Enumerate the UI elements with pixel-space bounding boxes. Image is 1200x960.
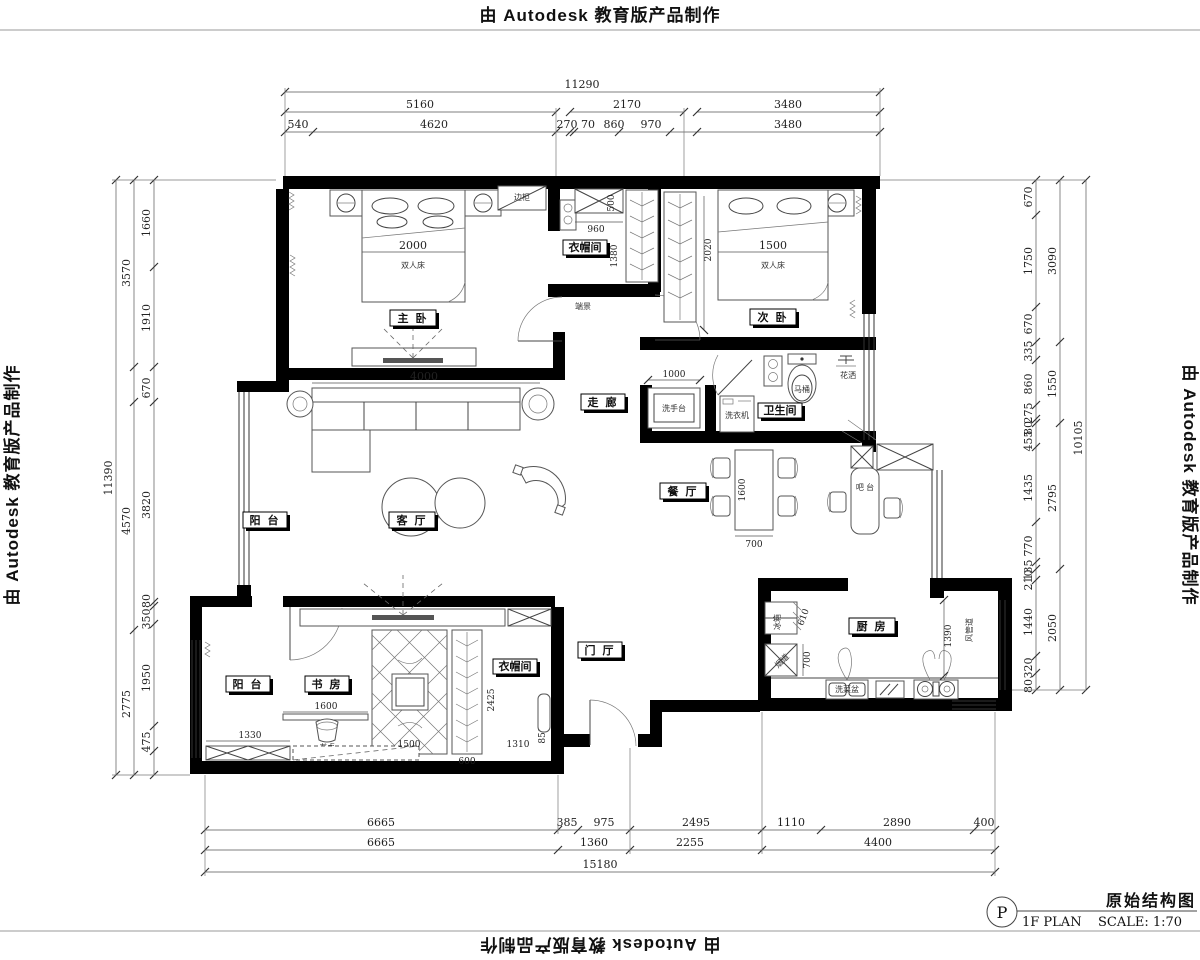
dim-right: 2050 [1046,614,1059,642]
dim-closet-depth: 1380 [610,244,620,267]
label-double-bed-second: 双人床 [761,260,785,270]
kitchen-sink: 洗菜盆 [826,648,868,699]
dim-right: 455 [1022,431,1035,452]
room-label-cloakroom-top: 衣帽间 [563,240,610,258]
armchair [513,465,566,515]
dim-left: 3820 [140,491,153,519]
dim-chain-top: 11290 5160 2170 3480 540 4620 270 70 860… [281,78,884,176]
dim-kitchen-depth: 700 [803,651,813,668]
svg-text:阳 台: 阳 台 [249,513,280,527]
side-cabinet-top: 边柜 [498,186,546,210]
svg-text:餐 厅: 餐 厅 [666,484,698,498]
plan-label: 1F PLAN [1022,915,1082,930]
drawing-title: 原始结构图 [1106,891,1196,910]
dim-right: 1750 [1022,247,1035,275]
dim-kitchen-width: 1390 [944,624,954,647]
svg-text:衣帽间: 衣帽间 [569,240,602,254]
fridge: 冰箱 610 [765,602,812,634]
tatami [372,630,447,754]
side-table-left [287,391,313,417]
dim-right: 3090 [1046,247,1059,275]
dim-bottom: 2255 [676,836,704,849]
stamp-text-left: 由 Autodesk 教育版产品制作 [2,365,22,606]
dim-right: 320 [1022,658,1035,679]
dim-bottom: 6665 [367,816,395,829]
cutting-board [876,681,904,698]
dim-second-bed: 1500 [759,239,787,252]
side-table-right [522,388,554,420]
dim-left: 1950 [140,664,153,692]
dim-right: 1435 [1022,474,1035,502]
dim-right: 80 [1022,679,1035,693]
dim-tatami: 1500 [398,740,421,750]
dim-bottom: 2890 [883,816,911,829]
room-label-foyer: 门 厅 [578,642,625,661]
svg-text:主 卧: 主 卧 [397,311,428,325]
dim-top-total: 11290 [565,78,600,91]
svg-text:走 廊: 走 廊 [586,395,618,409]
door-entry [590,700,636,746]
svg-text:衣帽间: 衣帽间 [499,659,532,673]
bar-counter: 吧 台 [828,468,903,534]
dim-top: 2170 [613,98,641,111]
dim-bottom-total: 15180 [583,858,618,871]
dim-dining-width: 700 [745,540,762,550]
dim-top: 3480 [774,98,802,111]
dim-left: 350 [140,609,153,630]
room-label-balcony-living: 阳 台 [243,512,290,531]
dim-balcony-study: 1330 [239,731,262,741]
dim-right: 860 [1022,374,1035,395]
dim-left: 670 [140,378,153,399]
dim-left: 80 [140,594,153,608]
dim-dining-length: 1600 [738,478,748,501]
room-label-study: 书 房 [305,676,352,695]
dim-top: 70 [581,118,595,131]
svg-text:冰箱: 冰箱 [772,614,782,630]
dim-right: 275 [1022,403,1035,424]
dim-left: 1910 [140,304,153,332]
dim-left: 2775 [120,690,133,718]
dim-top: 860 [604,118,625,131]
master-bed: 2000 双人床 [362,190,465,302]
svg-text:门 厅: 门 厅 [584,643,615,657]
dim-left-total: 11390 [102,461,115,496]
scale-label: SCALE: 1:70 [1098,915,1182,930]
room-label-balcony-study: 阳 台 [226,676,273,695]
floor-plan-canvas: 由 Autodesk 教育版产品制作 由 Autodesk 教育版产品制作 由 … [0,0,1200,960]
vanity: 洗手台 1000 [644,370,704,428]
room-label-living-room: 客 厅 [389,512,438,531]
room-label-master-bedroom: 主 卧 [390,310,439,329]
room-label-second-bedroom: 次 卧 [750,309,799,328]
dim-vanity: 1000 [663,370,686,380]
svg-text:洗手台: 洗手台 [662,403,686,413]
dim-left: 3570 [120,259,133,287]
stamp-text-top: 由 Autodesk 教育版产品制作 [480,5,721,25]
stove [914,651,958,699]
dim-right: 670 [1022,187,1035,208]
dim-bottom: 1110 [777,816,805,829]
dim-right: 1440 [1022,608,1035,636]
dim-left: 475 [140,732,153,753]
dim-second-wardrobe: 2020 [704,238,714,261]
dim-left: 4570 [120,507,133,535]
dim-top: 970 [641,118,662,131]
sofa [312,388,520,472]
dim-top: 270 [557,118,578,131]
svg-text:花洒: 花洒 [840,370,856,380]
bathroom: 洗手台 1000 洗衣机 马桶 花洒 卫生间 [644,354,876,443]
balcony-cabinets [206,746,419,760]
dim-right: 670 [1022,314,1035,335]
shower: 花洒 [836,356,876,443]
desk: 1600 书桌 [283,702,368,752]
stamp-text-right: 由 Autodesk 教育版产品制作 [1180,365,1200,606]
dim-right: 2795 [1046,484,1059,512]
coffee-table-2 [435,478,485,528]
kitchen: 冰箱 610 烟道 700 洗菜盆 1390 风管道 [765,596,998,699]
dim-bottom: 2495 [682,816,710,829]
svg-text:吧 台: 吧 台 [856,482,874,492]
title-block: P 原始结构图 1F PLAN SCALE: 1:70 [987,891,1197,930]
svg-text:卫生间: 卫生间 [764,403,797,417]
svg-text:马桶: 马桶 [794,384,810,394]
dim-master-bed: 2000 [399,239,427,252]
svg-text:书 房: 书 房 [311,677,342,691]
dim-right: 210 [1022,570,1035,591]
svg-text:客 厅: 客 厅 [395,513,427,527]
label-double-bed-master: 双人床 [401,260,425,270]
dim-wardrobe-600: 600 [458,757,475,767]
dim-closet-width: 960 [587,225,604,235]
dim-cloak-bottom: 1310 [507,740,530,750]
dim-bottom: 1360 [580,836,608,849]
window-living-balcony [239,392,249,585]
dim-top: 5160 [406,98,434,111]
dim-right-total: 10105 [1072,421,1085,456]
dim-left: 1660 [140,209,153,237]
label-duct: 风管道 [964,618,974,642]
room-label-corridor: 走 廊 [581,394,628,413]
svg-text:次 卧: 次 卧 [757,310,788,324]
stamp-text-bottom: 由 Autodesk 教育版产品制作 [480,935,721,955]
dim-bottom: 385 [557,816,578,829]
washing-machine: 洗衣机 [720,396,754,432]
dim-top: 3480 [774,118,802,131]
dim-chain-right: 670 1750 670 335 860 275 80 455 1435 770… [880,176,1090,694]
window-bedroom2-bath [864,314,874,440]
window-dining-bay [932,470,942,578]
dim-fridge: 610 [796,607,811,627]
svg-text:阳 台: 阳 台 [232,677,263,691]
svg-text:厨 房: 厨 房 [856,619,887,633]
second-bedroom: 2020 1500 双人床 次 卧 [664,190,854,334]
dim-closet-side: 500 [607,194,617,211]
dim-bottom: 975 [594,816,615,829]
dim-top: 540 [288,118,309,131]
dim-right: 770 [1022,536,1035,557]
dim-sofa-wall: 4000 [410,370,438,383]
dim-desk: 1600 [315,702,338,712]
master-bedroom: 2000 双人床 主 卧 [330,190,501,366]
wardrobe-column-bedroom2 [664,192,696,322]
wardrobe-column-study [452,630,482,754]
room-label-dining-room: 餐 厅 [660,483,709,502]
plan-mark: P [997,903,1008,922]
dim-top: 4620 [420,118,448,131]
svg-text:边柜: 边柜 [514,192,530,202]
label-end-feature: 端景 [575,301,591,311]
room-label-cloakroom-bottom: 衣帽间 [493,659,540,677]
second-bed: 1500 双人床 [718,190,828,300]
dim-right: 335 [1022,341,1035,362]
living-room: 4000 客 厅 阳 台 [243,370,565,536]
dining-room: 1600 700 餐 厅 吧 台 [660,444,933,550]
room-label-kitchen: 厨 房 [849,618,898,637]
door-bathroom [713,355,752,395]
svg-text:洗菜盆: 洗菜盆 [835,684,859,694]
wardrobe-column-closet [626,190,658,282]
toilet: 马桶 [788,354,816,403]
flue: 烟道 [765,644,797,676]
dim-bottom: 4400 [864,836,892,849]
svg-text:洗衣机: 洗衣机 [725,410,749,420]
dim-bottom: 400 [974,816,995,829]
room-label-bathroom: 卫生间 [758,403,805,421]
dim-right: 1550 [1046,370,1059,398]
dim-study-depth: 2425 [487,688,497,711]
dim-bottom: 6665 [367,836,395,849]
